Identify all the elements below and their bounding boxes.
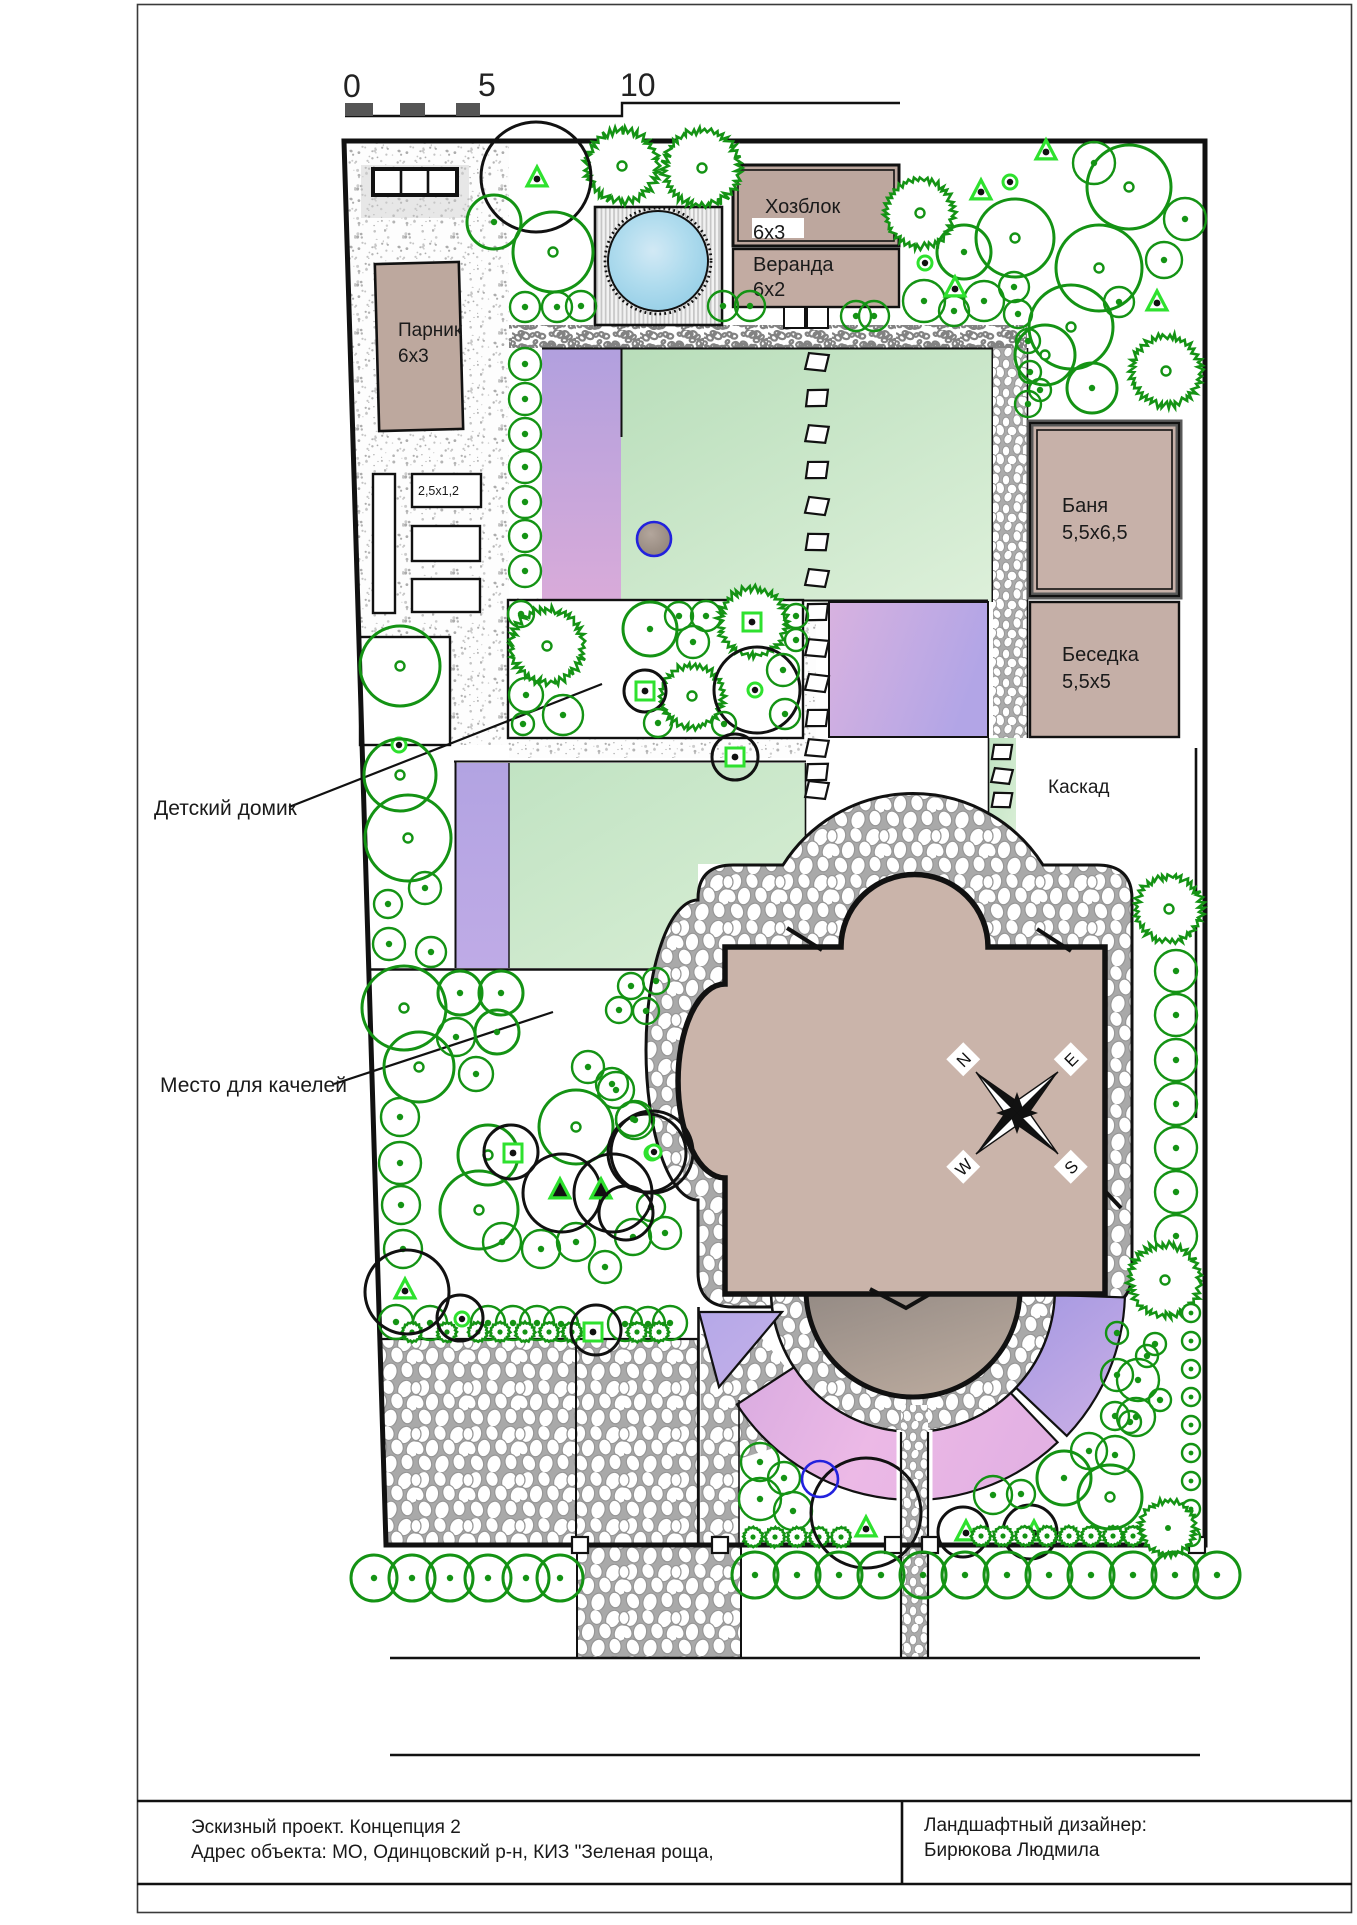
svg-text:6х3: 6х3: [398, 346, 429, 367]
svg-text:Детский домик: Детский домик: [154, 797, 298, 820]
svg-text:Ландшафтный дизайнер:: Ландшафтный дизайнер:: [924, 1815, 1147, 1836]
svg-text:5,5х6,5: 5,5х6,5: [1062, 522, 1128, 544]
svg-text:5: 5: [478, 67, 496, 103]
svg-text:2,5х1,2: 2,5х1,2: [418, 484, 459, 498]
svg-text:Место для качелей: Место для качелей: [160, 1074, 347, 1097]
svg-text:5,5х5: 5,5х5: [1062, 671, 1111, 693]
svg-text:Бирюкова Людмила: Бирюкова Людмила: [924, 1840, 1100, 1861]
svg-text:Парник: Парник: [398, 320, 463, 341]
svg-text:Беседка: Беседка: [1062, 644, 1140, 666]
svg-text:6х2: 6х2: [753, 279, 785, 301]
svg-text:6х3: 6х3: [753, 222, 785, 244]
svg-text:Эскизный проект. Концепция 2: Эскизный проект. Концепция 2: [191, 1817, 461, 1838]
svg-text:Хозблок: Хозблок: [765, 196, 841, 218]
svg-text:Каскад: Каскад: [1048, 777, 1110, 798]
svg-text:Веранда: Веранда: [753, 254, 834, 276]
svg-text:Адрес объекта: МО, Одинцовский: Адрес объекта: МО, Одинцовский р-н, КИЗ …: [191, 1842, 714, 1863]
svg-text:0: 0: [343, 68, 361, 104]
svg-text:10: 10: [620, 67, 656, 103]
svg-text:Баня: Баня: [1062, 495, 1108, 517]
